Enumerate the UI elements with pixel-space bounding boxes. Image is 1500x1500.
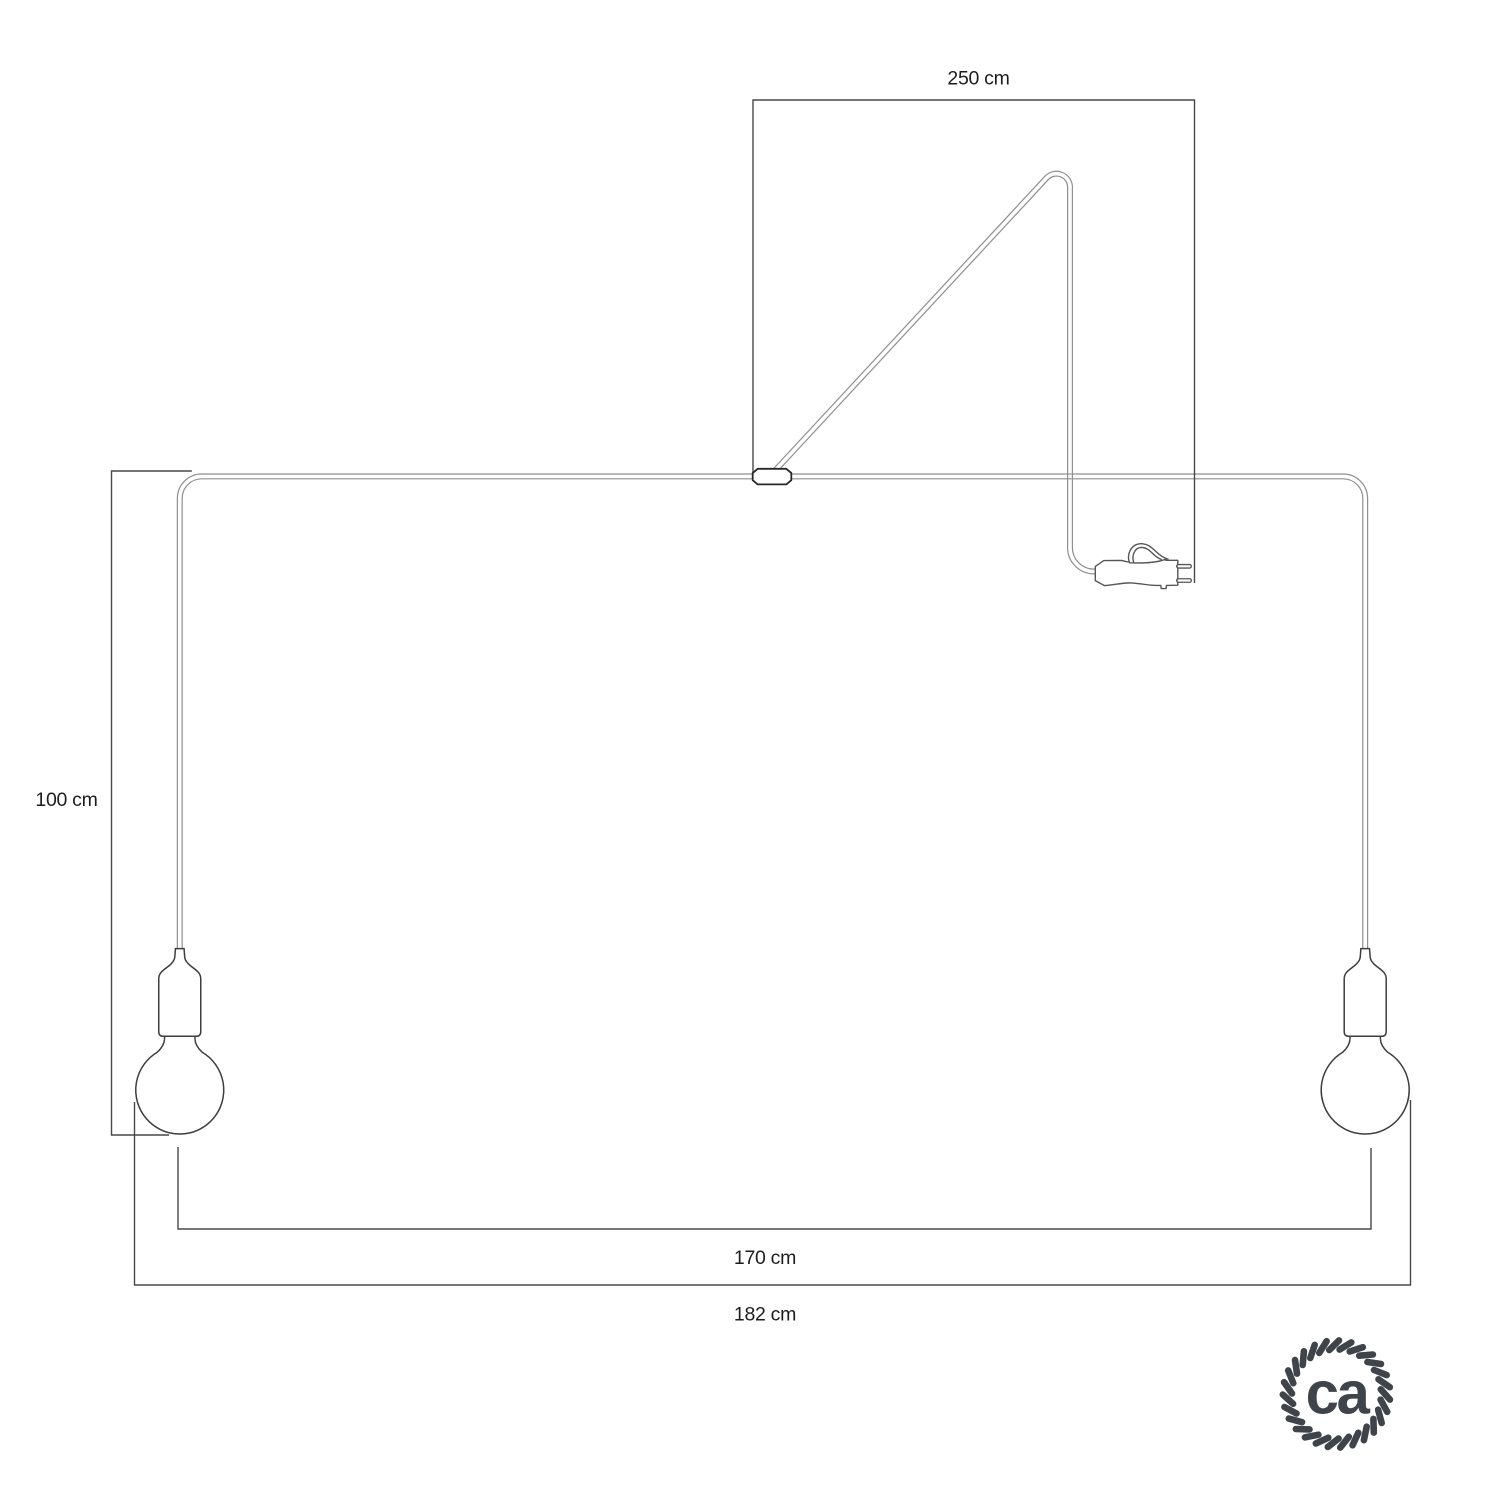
svg-text:182 cm: 182 cm: [734, 1303, 796, 1325]
svg-text:100 cm: 100 cm: [35, 789, 97, 811]
svg-text:250 cm: 250 cm: [947, 67, 1009, 89]
svg-text:170 cm: 170 cm: [734, 1247, 796, 1269]
svg-text:ca: ca: [1306, 1360, 1371, 1427]
